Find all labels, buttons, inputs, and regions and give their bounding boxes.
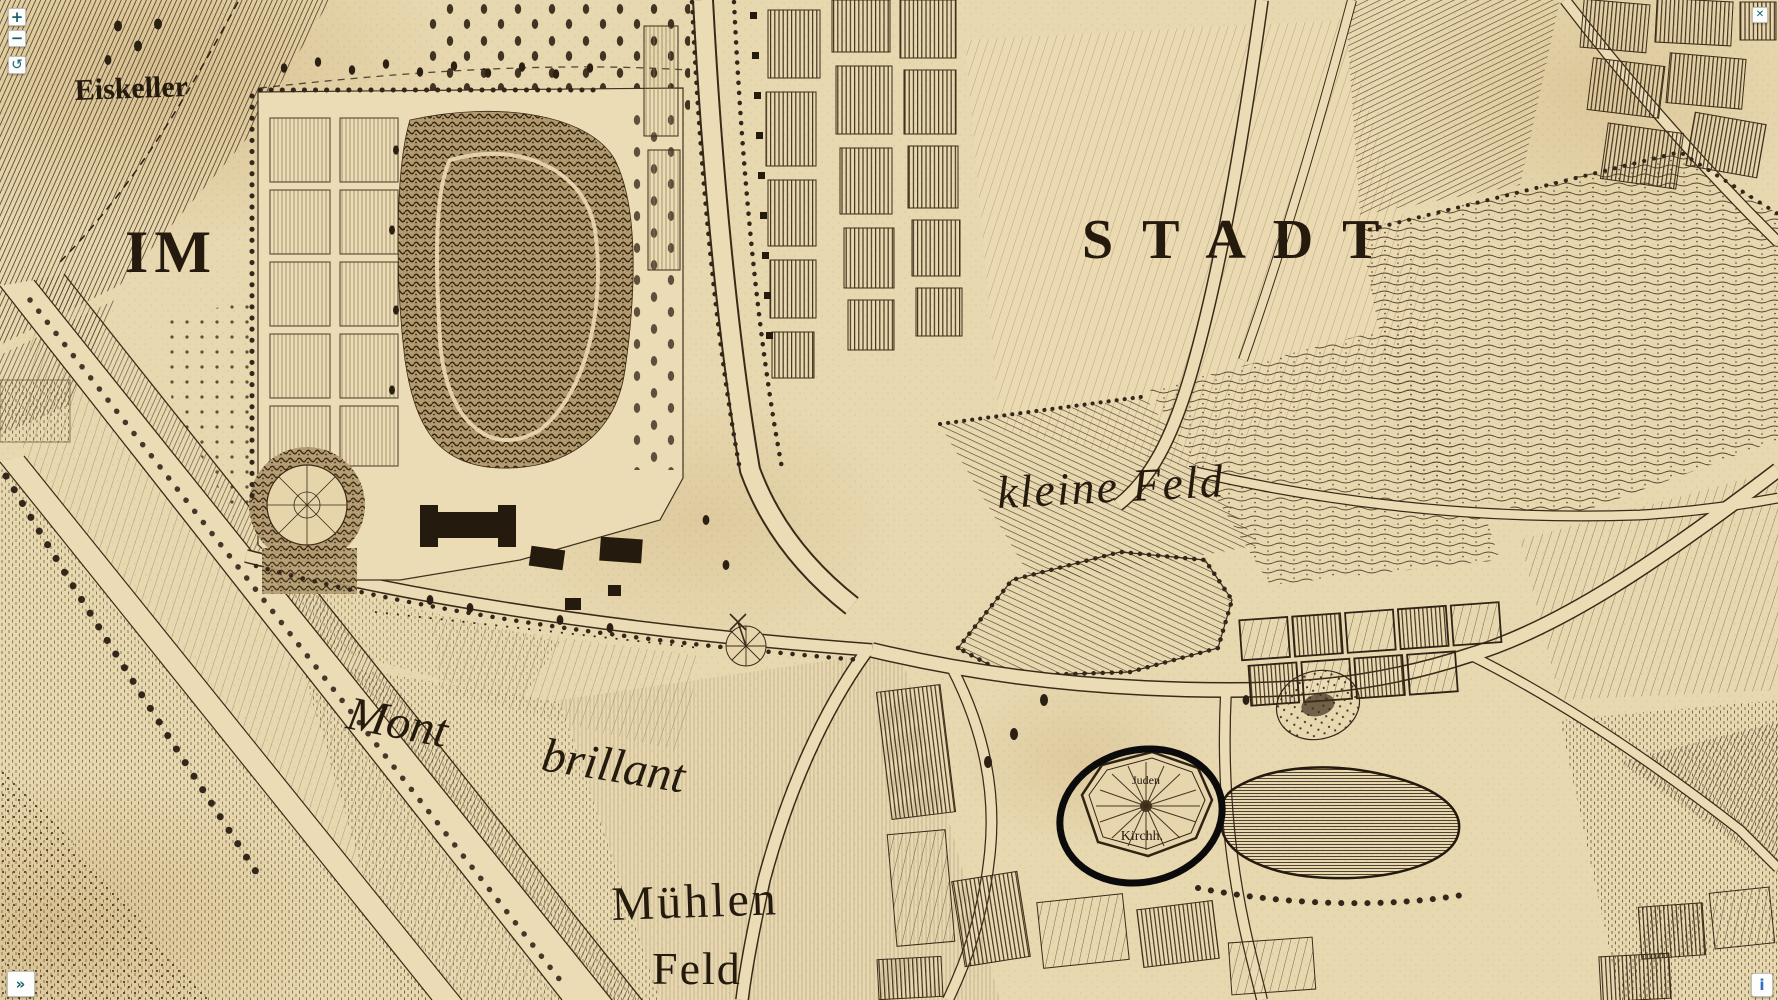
cemetery-star: Juden Kirchh. (1082, 752, 1212, 856)
zoom-out-button[interactable]: − (8, 30, 26, 47)
panel-expand-button[interactable]: » (7, 971, 35, 997)
map-viewport: Juden Kirchh. Eis (0, 0, 1778, 1000)
rotate-arrow-icon: ↺ (11, 58, 23, 72)
label-muehlen: Mühlen (611, 872, 780, 931)
cemetery-label-top: Juden (1132, 773, 1160, 787)
double-chevron-right-icon: » (16, 977, 27, 992)
label-stadt: S T A D T (1082, 209, 1388, 271)
historical-map-engraving[interactable]: Juden Kirchh. Eis (0, 0, 1778, 1000)
attribution-button[interactable]: i (1751, 973, 1773, 997)
rotate-reset-button[interactable]: ↺ (8, 56, 26, 74)
round-parterre (267, 465, 347, 545)
label-feld: Feld (652, 943, 742, 994)
cemetery-label-bottom: Kirchh. (1121, 829, 1163, 844)
label-im: IM (125, 219, 217, 285)
close-icon: ✕ (1756, 10, 1764, 20)
label-eiskeller: Eiskeller (74, 70, 188, 107)
plus-icon: + (11, 10, 24, 25)
minus-icon: − (11, 31, 24, 46)
close-button[interactable]: ✕ (1752, 7, 1768, 23)
info-icon: i (1759, 978, 1764, 993)
zoom-in-button[interactable]: + (8, 8, 26, 26)
